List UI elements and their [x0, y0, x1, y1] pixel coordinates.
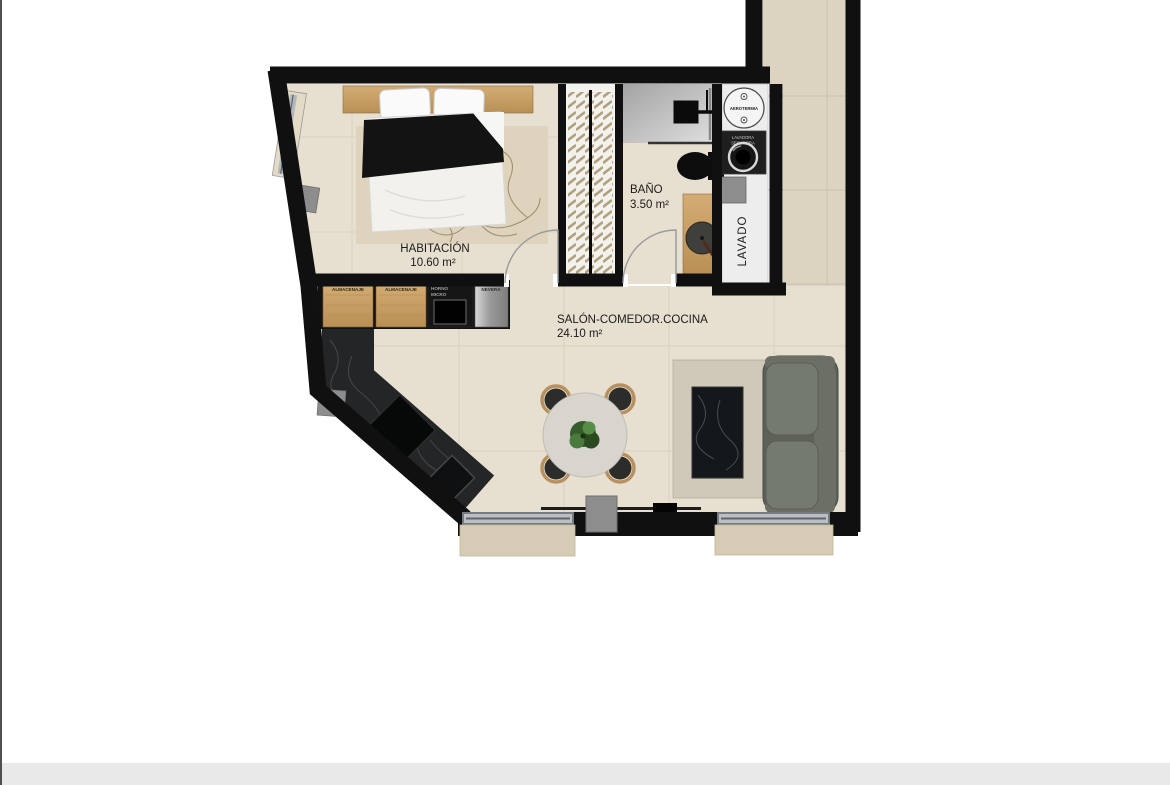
tv	[653, 503, 677, 512]
room-label-bano: BAÑO	[630, 183, 663, 196]
washer-label-1: LAVADORA	[732, 135, 754, 140]
room-label-habitacion: HABITACIÓN	[400, 242, 469, 255]
window-sill-right	[715, 525, 833, 555]
window-bottom-right	[715, 512, 833, 555]
kitchen-cabinet-almacenaje-1: ALMACENAJE	[323, 283, 373, 327]
oven-micro-unit: HORNO MICRO	[428, 283, 473, 327]
facade-pillar	[586, 496, 617, 532]
cabinet-label: ALMACENAJE	[332, 287, 364, 292]
sofa	[763, 356, 838, 513]
floor-plan: AEROTERMIA LAVADORA SECADORA LAVADO ALMA…	[0, 0, 1170, 785]
oven-door	[434, 300, 466, 324]
aerotermia-label: AEROTERMIA	[730, 106, 758, 111]
cabinet-label: ALMACENAJE	[385, 287, 417, 292]
room-area-salon: 24.10 m²	[557, 328, 603, 340]
wardrobe	[566, 84, 615, 284]
aerotermia-unit: AEROTERMIA	[724, 88, 764, 128]
window-bottom-left	[460, 512, 575, 556]
coffee-table	[692, 387, 743, 478]
cabinet-label: NEVERA	[481, 287, 501, 292]
room-area-bano: 3.50 m²	[630, 199, 669, 211]
washer-dryer-icon: LAVADORA SECADORA	[721, 131, 766, 174]
left-edge-line	[0, 0, 2, 785]
cabinet-label: HORNO	[431, 286, 449, 291]
footer-bar	[0, 763, 1170, 785]
kitchen-cabinet-almacenaje-2: ALMACENAJE	[376, 283, 426, 327]
room-label-salon: SALÓN-COMEDOR.COCINA	[557, 313, 708, 326]
cabinet-label: MICRO	[431, 292, 447, 297]
floor-plan-page: AEROTERMIA LAVADORA SECADORA LAVADO ALMA…	[0, 0, 1170, 785]
fridge: NEVERA	[475, 283, 508, 327]
wardrobe-rail	[589, 90, 592, 278]
dining-set	[542, 385, 634, 482]
room-area-habitacion: 10.60 m²	[410, 257, 456, 269]
window-sill-left	[460, 525, 575, 556]
room-label-lavado: LAVADO	[737, 216, 749, 267]
